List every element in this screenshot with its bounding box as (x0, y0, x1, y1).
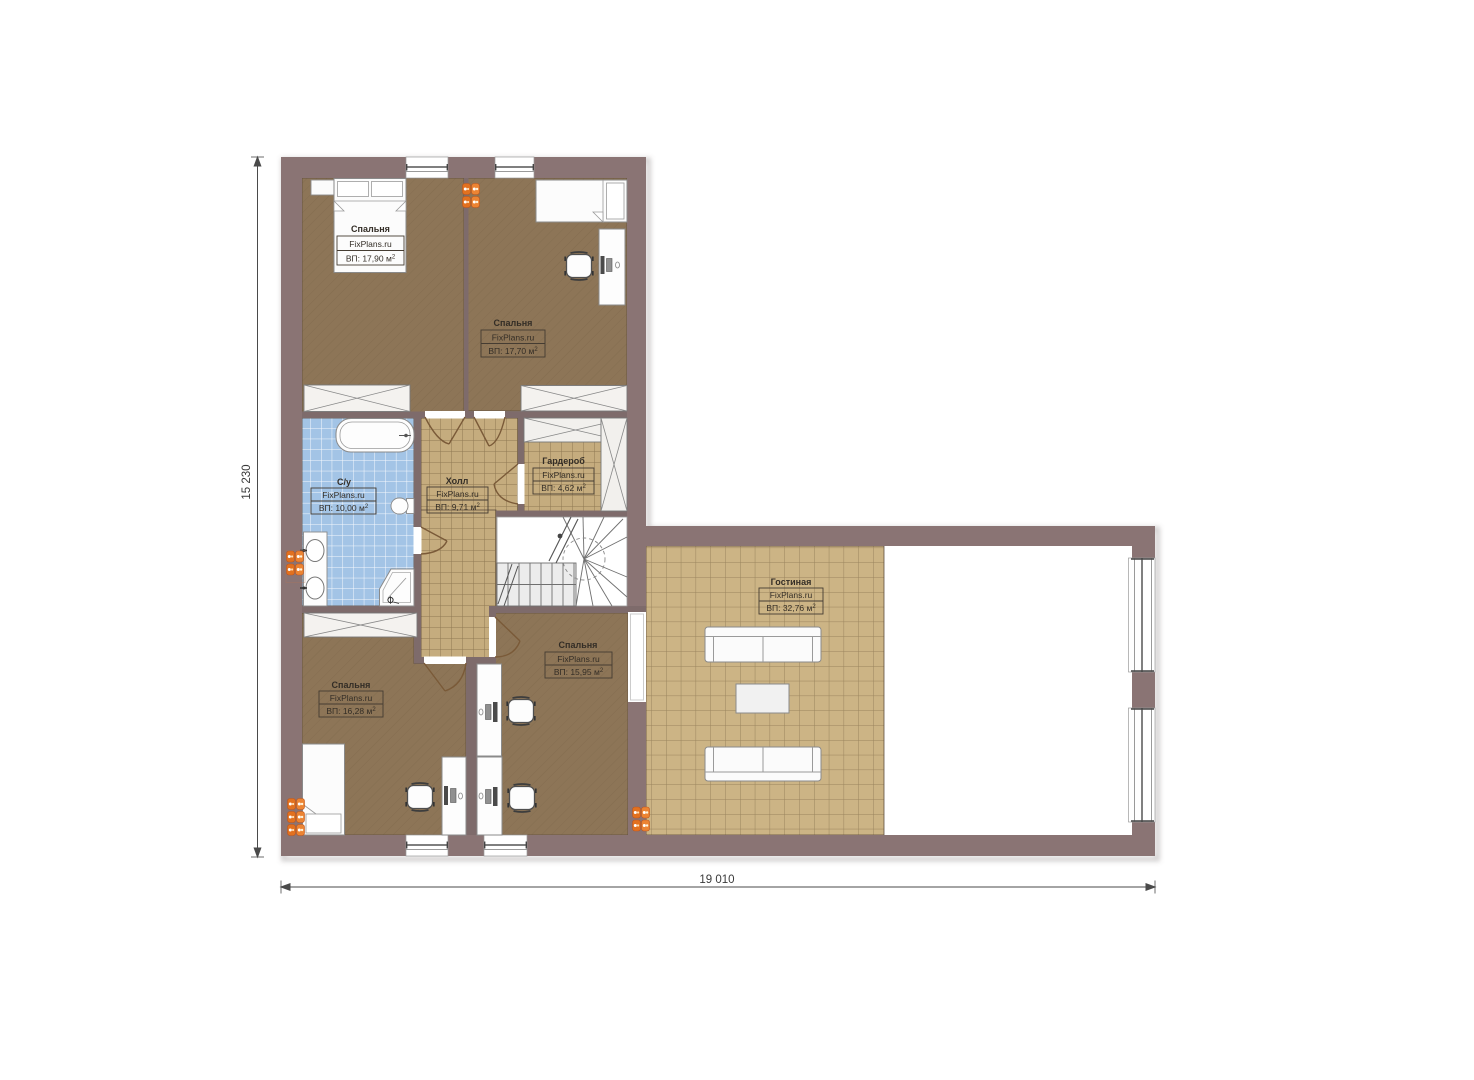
svg-text:ВП: 16,28 м2: ВП: 16,28 м2 (326, 706, 376, 716)
svg-text:ВП: 9,71 м2: ВП: 9,71 м2 (435, 502, 480, 512)
svg-text:С/у: С/у (337, 477, 351, 487)
svg-text:Спальня: Спальня (351, 224, 390, 234)
svg-text:15 230: 15 230 (241, 464, 253, 499)
svg-text:Спальня: Спальня (559, 640, 598, 650)
svg-text:FixPlans.ru: FixPlans.ru (436, 489, 479, 499)
svg-text:FixPlans.ru: FixPlans.ru (492, 333, 535, 343)
svg-text:FixPlans.ru: FixPlans.ru (770, 590, 813, 600)
svg-text:FixPlans.ru: FixPlans.ru (322, 490, 365, 500)
svg-text:ВП: 10,00 м2: ВП: 10,00 м2 (319, 503, 369, 513)
svg-text:19 010: 19 010 (699, 874, 734, 886)
svg-text:Гостиная: Гостиная (771, 577, 812, 587)
svg-text:FixPlans.ru: FixPlans.ru (557, 654, 600, 664)
svg-text:FixPlans.ru: FixPlans.ru (542, 470, 585, 480)
svg-text:Гардероб: Гардероб (542, 456, 585, 466)
svg-text:Спальня: Спальня (494, 318, 533, 328)
svg-text:FixPlans.ru: FixPlans.ru (349, 239, 392, 249)
svg-text:ВП: 4,62 м2: ВП: 4,62 м2 (541, 483, 586, 493)
svg-text:ВП: 17,90 м2: ВП: 17,90 м2 (346, 254, 396, 264)
svg-text:ВП: 32,76 м2: ВП: 32,76 м2 (766, 603, 816, 613)
svg-text:Спальня: Спальня (332, 680, 371, 690)
svg-text:Холл: Холл (446, 476, 469, 486)
svg-text:ВП: 15,95 м2: ВП: 15,95 м2 (554, 667, 604, 677)
svg-text:ВП: 17,70 м2: ВП: 17,70 м2 (488, 346, 538, 356)
svg-text:FixPlans.ru: FixPlans.ru (330, 693, 373, 703)
